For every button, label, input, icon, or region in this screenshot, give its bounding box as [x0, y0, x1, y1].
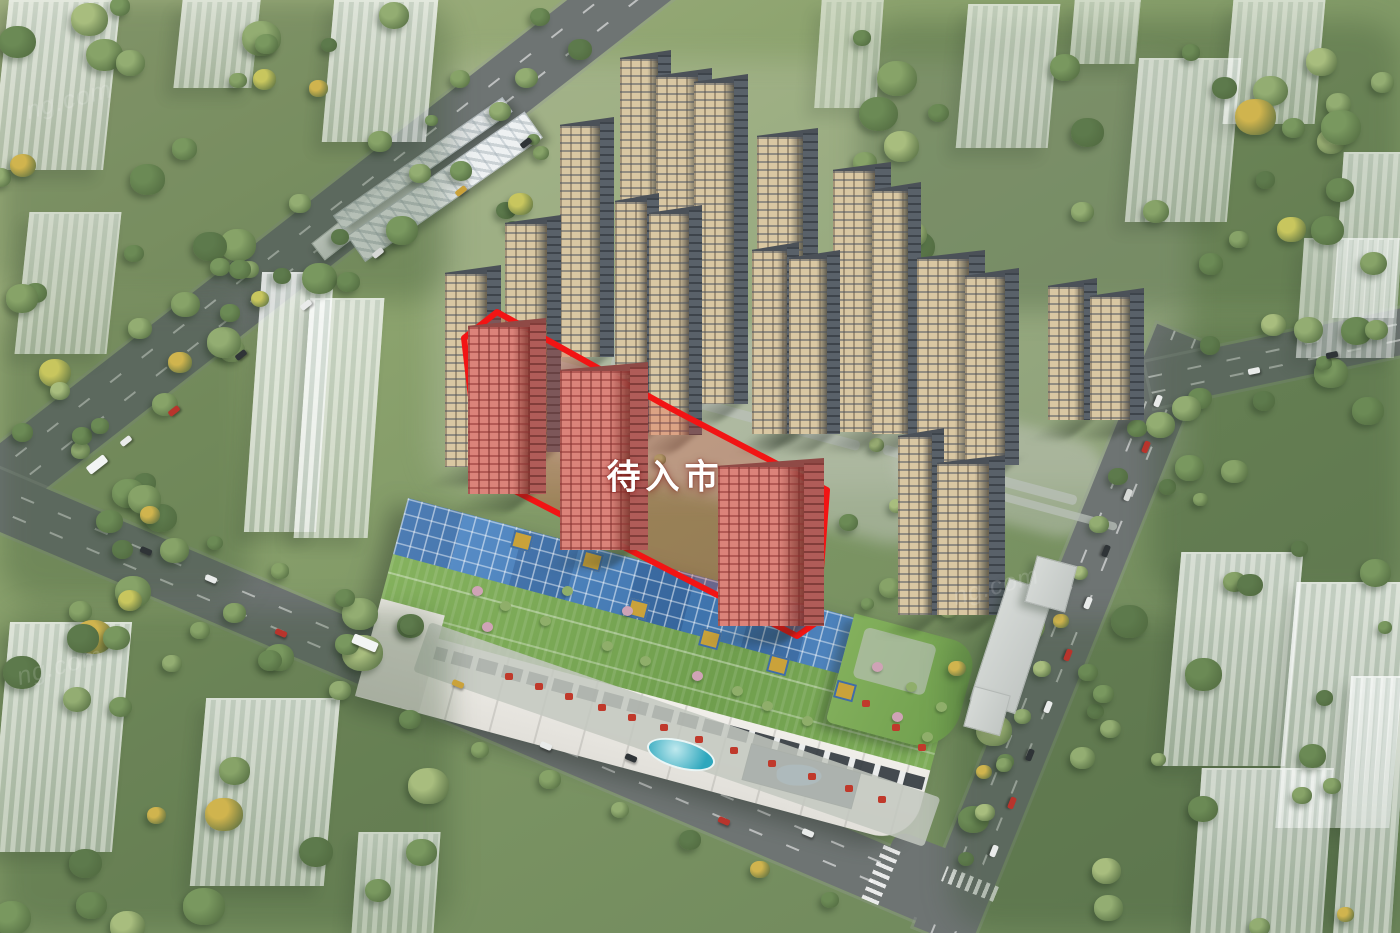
storefront-canopy: [535, 683, 543, 690]
tree: [1050, 54, 1080, 81]
tree: [110, 0, 131, 16]
tree: [69, 849, 102, 878]
tree: [1221, 460, 1247, 483]
tree: [1146, 412, 1175, 438]
tree: [530, 8, 550, 26]
tree: [1323, 778, 1341, 794]
tree: [162, 655, 181, 672]
tree: [210, 258, 230, 276]
roof-tree: [622, 606, 633, 616]
tree: [96, 510, 122, 533]
tree: [229, 73, 246, 88]
tree: [130, 164, 165, 195]
tree: [253, 69, 277, 90]
tree: [1235, 99, 1276, 135]
tree: [1093, 685, 1113, 703]
residential-tower: [694, 74, 748, 404]
tree: [12, 423, 34, 442]
tree: [1311, 216, 1344, 245]
tree: [368, 131, 391, 152]
tree: [1092, 858, 1122, 884]
tree: [223, 603, 246, 623]
tree: [109, 697, 132, 717]
tree: [1159, 479, 1177, 495]
tree: [1200, 336, 1221, 354]
tower-side: [689, 210, 702, 435]
storefront-canopy: [505, 673, 513, 680]
tree: [1111, 605, 1149, 638]
tree: [183, 888, 225, 925]
tree: [884, 131, 919, 162]
tree: [1256, 171, 1276, 188]
tree: [975, 804, 994, 821]
residential-tower: [872, 182, 921, 434]
tree: [71, 3, 108, 36]
tree: [67, 624, 100, 653]
tree: [76, 892, 107, 919]
tree: [409, 164, 430, 183]
context-building: [956, 4, 1061, 148]
tree: [251, 291, 269, 307]
pending-launch-label: 待入市: [607, 450, 724, 499]
roof-tree: [732, 686, 743, 696]
tree: [6, 284, 38, 313]
roof-tree: [692, 671, 703, 681]
tree: [103, 626, 130, 650]
tree: [271, 563, 288, 578]
tower-side: [547, 220, 561, 452]
residential-tower: [789, 250, 840, 434]
tree: [996, 758, 1012, 772]
tower-face: [1090, 297, 1130, 420]
tree: [400, 617, 421, 635]
roof-tree: [872, 662, 883, 672]
tree: [299, 837, 333, 867]
tree: [1360, 559, 1392, 587]
tree: [408, 768, 449, 804]
tree: [1143, 200, 1169, 223]
storefront-canopy: [892, 724, 900, 731]
tree: [255, 34, 278, 54]
tree: [489, 102, 511, 121]
tree: [112, 540, 134, 559]
tree: [337, 272, 360, 292]
tree: [1371, 72, 1395, 93]
tree: [193, 232, 226, 261]
tree: [50, 382, 71, 400]
storefront-canopy: [695, 736, 703, 743]
tower-face: [505, 224, 547, 452]
tower-face: [445, 274, 487, 467]
tree: [0, 901, 31, 933]
tower-face: [560, 126, 600, 357]
tree: [1321, 110, 1361, 145]
tree: [450, 70, 471, 88]
tree: [450, 161, 472, 181]
tree: [611, 802, 629, 818]
tree: [679, 830, 701, 850]
masterplan-render: 待入市 ng.com ng.com ng.com: [0, 0, 1400, 933]
tree: [168, 352, 192, 373]
tree: [425, 115, 438, 126]
tree: [140, 506, 161, 524]
tower-face: [965, 277, 1005, 465]
tree: [1326, 178, 1354, 202]
tree: [859, 97, 898, 131]
tower-side: [827, 255, 840, 434]
tree: [1182, 44, 1200, 60]
tree: [1188, 796, 1218, 822]
roof-tree: [500, 601, 511, 611]
tree: [10, 154, 37, 177]
tree: [1151, 753, 1166, 766]
tree: [1291, 541, 1309, 556]
tree: [172, 138, 196, 159]
tree: [321, 38, 337, 52]
tree: [128, 318, 152, 339]
residential-tower: [965, 268, 1019, 465]
tree: [1378, 621, 1392, 634]
tree: [539, 770, 560, 789]
roof-tree: [892, 712, 903, 722]
roof-tree: [906, 682, 917, 692]
roof-tree: [640, 656, 651, 666]
storefront-canopy: [878, 796, 886, 803]
tree: [229, 260, 250, 279]
roof-tree: [936, 702, 947, 712]
context-building: [1190, 768, 1334, 933]
storefront-canopy: [660, 724, 668, 731]
tree: [124, 245, 143, 262]
tree: [160, 538, 189, 563]
tower-face: [649, 214, 689, 435]
tree: [116, 50, 145, 76]
tower-face: [615, 202, 647, 433]
tree: [853, 30, 871, 46]
tower-face: [752, 251, 787, 434]
tree: [72, 427, 93, 445]
storefront-canopy: [845, 785, 853, 792]
roof-tree: [562, 586, 573, 596]
storefront-canopy: [862, 700, 870, 707]
roof-tree: [472, 586, 483, 596]
tree: [1294, 317, 1323, 343]
tree: [948, 661, 965, 676]
tree: [91, 418, 109, 434]
tree: [1071, 118, 1104, 147]
tree: [110, 911, 145, 933]
tree: [190, 622, 210, 639]
tree: [1306, 48, 1337, 75]
tree: [335, 589, 355, 607]
tree: [1175, 455, 1204, 481]
tree: [1352, 397, 1384, 425]
tree: [1193, 493, 1208, 506]
tree: [147, 807, 166, 824]
tree: [1087, 704, 1104, 719]
tree: [1360, 252, 1387, 276]
storefront-canopy: [730, 747, 738, 754]
tree: [386, 216, 418, 244]
tree: [1337, 907, 1354, 922]
residential-tower: [1090, 288, 1144, 420]
tree: [273, 268, 291, 284]
tree: [1261, 314, 1287, 336]
tree: [750, 861, 769, 878]
roof-tree: [602, 641, 613, 651]
tower-face: [872, 191, 908, 434]
residential-tower: [505, 215, 561, 452]
storefront-canopy: [768, 760, 776, 767]
storefront-canopy: [628, 714, 636, 721]
tower-side: [487, 270, 501, 467]
storefront-canopy: [565, 693, 573, 700]
tree: [329, 681, 350, 700]
tree: [1316, 690, 1334, 706]
roof-tree: [482, 622, 493, 632]
tree: [821, 892, 839, 908]
tree: [399, 710, 421, 729]
tree: [1253, 391, 1275, 411]
tree: [1053, 614, 1068, 628]
tree: [1212, 77, 1237, 99]
tree: [1249, 918, 1269, 933]
tree: [3, 656, 41, 689]
roof-tree: [922, 732, 933, 742]
tree: [1237, 574, 1262, 596]
context-building: [1069, 0, 1141, 64]
tree: [1071, 202, 1094, 222]
storefront-canopy: [808, 773, 816, 780]
tree: [1365, 320, 1388, 340]
tree: [1033, 661, 1051, 677]
tree: [302, 263, 337, 294]
tree: [289, 194, 310, 213]
residential-tower: [445, 265, 501, 467]
tower-face: [789, 259, 827, 434]
tree: [1292, 787, 1311, 804]
tower-face: [1048, 287, 1084, 420]
tree: [568, 39, 592, 60]
roof-tree: [762, 701, 773, 711]
tree: [1229, 231, 1248, 248]
tree: [1282, 118, 1305, 138]
tree: [69, 601, 92, 621]
residential-tower: [560, 117, 614, 357]
roof-tree: [802, 716, 813, 726]
tree: [1070, 747, 1095, 769]
tree: [1089, 516, 1108, 533]
tree: [1094, 895, 1123, 920]
context-building: [814, 0, 884, 108]
tower-side: [600, 122, 614, 357]
tree: [861, 598, 875, 610]
tree: [976, 765, 992, 779]
tree: [219, 757, 250, 784]
tree: [1299, 744, 1326, 768]
tree: [1172, 396, 1201, 421]
residential-tower: [649, 205, 702, 435]
storefront-canopy: [598, 704, 606, 711]
tower-side: [734, 79, 748, 404]
storefront-canopy: [918, 744, 926, 751]
tree: [365, 879, 392, 902]
tower-side: [1005, 273, 1019, 465]
tower-face: [898, 437, 932, 615]
residential-tower: [937, 455, 1005, 615]
tree: [471, 742, 489, 758]
tree: [171, 292, 199, 317]
tree: [1108, 468, 1128, 485]
tree: [1277, 217, 1305, 242]
tree: [1185, 658, 1222, 691]
tower-face: [937, 464, 989, 615]
tree: [331, 229, 350, 245]
tree: [207, 327, 242, 358]
tree: [406, 839, 436, 866]
tree: [205, 798, 242, 831]
tower-side: [989, 460, 1005, 615]
tree: [508, 193, 533, 215]
tree: [220, 304, 240, 321]
tree: [309, 80, 328, 96]
roof-tree: [540, 616, 551, 626]
tree: [877, 61, 917, 96]
tree: [582, 417, 593, 426]
tree: [1078, 664, 1097, 681]
tree: [1199, 253, 1223, 274]
tower-side: [1130, 293, 1144, 420]
